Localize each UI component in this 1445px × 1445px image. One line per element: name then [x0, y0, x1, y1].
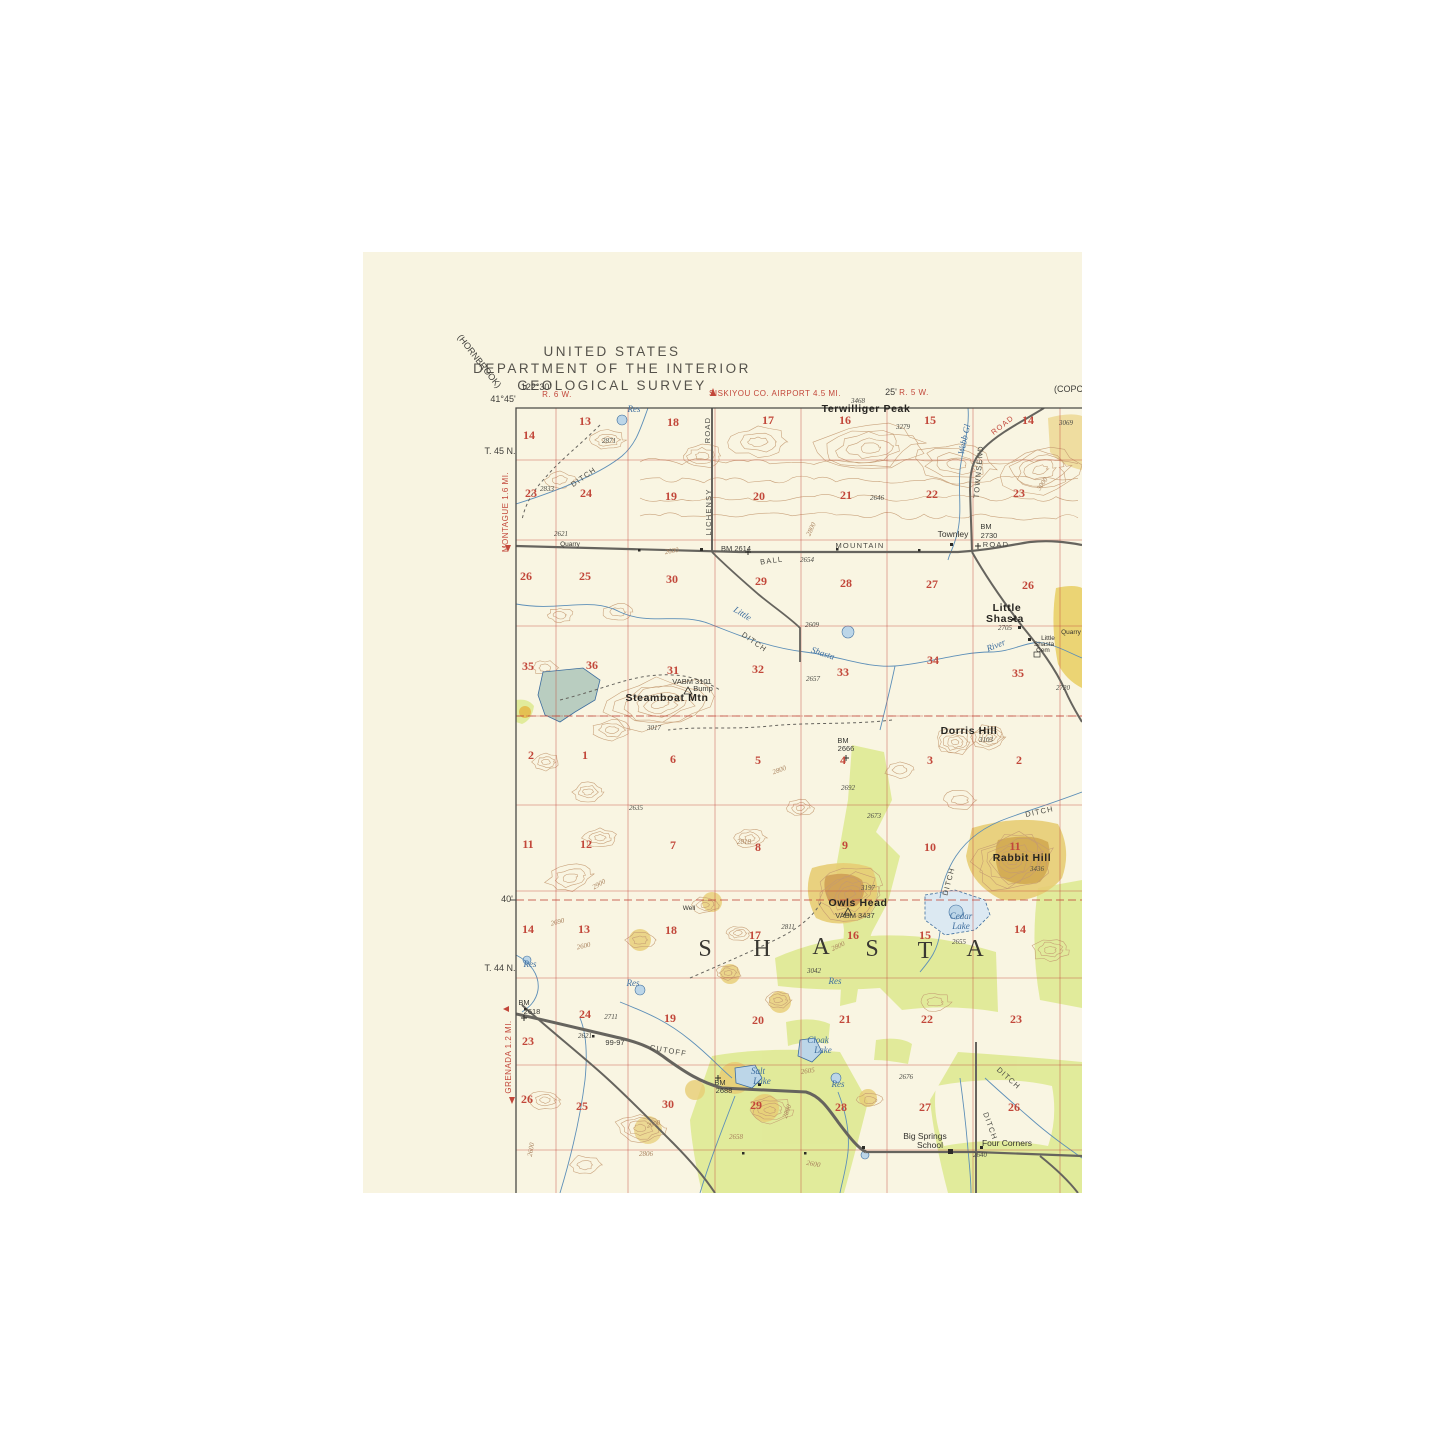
label-2657: 2657 [806, 675, 821, 683]
label-2833: 2833 [540, 485, 555, 493]
label-2666: 2666 [838, 744, 855, 753]
label-2673: 2673 [867, 812, 882, 820]
section-number-16: 16 [839, 413, 851, 427]
section-number-21: 21 [839, 1012, 851, 1026]
label-2609: 2609 [805, 621, 820, 629]
label-r-6-w: R. 6 W. [542, 390, 572, 399]
label-t-45-n: T. 45 N. [484, 446, 515, 456]
label-terwilliger-peak: Terwilliger Peak [822, 403, 911, 415]
section-number-29: 29 [750, 1098, 762, 1112]
section-number-33: 33 [837, 665, 849, 679]
section-number-28: 28 [835, 1100, 847, 1114]
label-3197: 3197 [860, 884, 876, 892]
label-owls-head: Owls Head [828, 897, 887, 909]
section-number-25: 25 [576, 1099, 588, 1113]
section-number-32: 32 [752, 662, 764, 676]
section-number-25: 25 [579, 569, 591, 583]
label-cedar: Cedar [950, 911, 973, 921]
section-number-14: 14 [1014, 922, 1026, 936]
section-number-24: 24 [580, 486, 592, 500]
section-number-30: 30 [666, 572, 678, 586]
section-number-24: 24 [579, 1007, 591, 1021]
section-number-18: 18 [665, 923, 677, 937]
map-body [516, 408, 1082, 1193]
screenshot-canvas: UNITED STATES DEPARTMENT OF THE INTERIOR… [0, 0, 1445, 1445]
label-41-45: 41°45' [490, 394, 516, 404]
section-number-23: 23 [522, 1034, 534, 1048]
label-siskiyou-co-airport-4-5-mi: SISKIYOU CO. AIRPORT 4.5 MI. [709, 389, 841, 398]
label-lake: Lake [813, 1045, 832, 1055]
section-number-17: 17 [762, 413, 774, 427]
label-3279: 3279 [895, 423, 911, 431]
label-bm: BM [518, 998, 529, 1007]
header-line-1: UNITED STATES [543, 344, 680, 359]
section-number-3: 3 [927, 753, 933, 767]
section-number-13: 13 [578, 922, 590, 936]
label-res: Res [523, 959, 537, 969]
section-number-14: 14 [522, 922, 534, 936]
label-2654: 2654 [800, 556, 815, 564]
label-res: Res [627, 404, 641, 414]
section-number-18: 18 [667, 415, 679, 429]
label-well: Well [683, 905, 696, 912]
label-s: S [698, 936, 713, 962]
pond [842, 626, 854, 638]
section-number-6: 6 [670, 752, 676, 766]
school-symbol [948, 1149, 953, 1154]
section-number-11: 11 [522, 837, 533, 851]
pond [617, 415, 627, 425]
section-number-19: 19 [665, 489, 677, 503]
label-mountain: MOUNTAIN [835, 541, 884, 550]
label-3103: 3103 [978, 736, 994, 744]
label-h: H [753, 936, 772, 962]
label-3468: 3468 [850, 397, 866, 405]
label-rabbit-hill: Rabbit Hill [993, 852, 1052, 864]
section-number-27: 27 [926, 577, 938, 591]
section-number-26: 26 [1008, 1100, 1020, 1114]
label-2818: 2818 [737, 838, 752, 846]
label-2618: 2618 [524, 1007, 541, 1016]
label-school: School [917, 1140, 943, 1150]
label-bm: BM [980, 522, 991, 531]
section-number-35: 35 [522, 659, 534, 673]
section-number-35: 35 [1012, 666, 1024, 680]
label-bump: Bump [693, 684, 713, 693]
label-r-5-w: R. 5 W. [899, 388, 929, 397]
label-40: 40' [501, 894, 513, 904]
label-99-97: 99-97 [605, 1038, 624, 1047]
label-2730: 2730 [981, 531, 998, 540]
topo-map-scan: UNITED STATES DEPARTMENT OF THE INTERIOR… [0, 0, 1445, 1445]
section-number-1: 1 [582, 748, 588, 762]
section-number-20: 20 [752, 1013, 764, 1027]
section-number-22: 22 [921, 1012, 933, 1026]
section-number-23: 23 [1010, 1012, 1022, 1026]
label-2711: 2711 [604, 1013, 617, 1021]
section-number-13: 13 [579, 414, 591, 428]
label-bm-2614: BM 2614 [721, 544, 751, 553]
label-2655: 2655 [952, 938, 967, 946]
label-2688: 2688 [716, 1086, 733, 1095]
label-lake: Lake [752, 1076, 771, 1086]
section-number-22: 22 [926, 487, 938, 501]
section-number-29: 29 [755, 574, 767, 588]
label-montague-1-6-mi: MONTAGUE 1.6 MI. [501, 472, 510, 552]
section-number-14: 14 [523, 428, 535, 442]
label-2811: 2811 [781, 923, 794, 931]
label-cloak: Cloak [807, 1035, 830, 1045]
label-25: 25' [885, 387, 897, 397]
label-2720: 2720 [1056, 684, 1071, 692]
section-number-14: 14 [1022, 413, 1034, 427]
label-a: A [966, 936, 985, 962]
label-3042: 3042 [806, 967, 822, 975]
label-salt: Salt [751, 1066, 766, 1076]
label-2658: 2658 [729, 1133, 744, 1141]
section-number-4: 4 [840, 753, 846, 767]
label-2806: 2806 [639, 1150, 654, 1158]
section-number-11: 11 [1009, 839, 1020, 853]
section-number-20: 20 [753, 489, 765, 503]
section-number-34: 34 [927, 653, 939, 667]
label-2635: 2635 [629, 804, 644, 812]
label-2621: 2621 [578, 1032, 592, 1040]
label-lake: Lake [951, 921, 970, 931]
label-2692: 2692 [841, 784, 856, 792]
section-number-2: 2 [528, 748, 534, 762]
label-3436: 3436 [1029, 865, 1045, 873]
label-quarry: Quarry [1061, 629, 1082, 636]
section-number-8: 8 [755, 840, 761, 854]
section-number-2: 2 [1016, 753, 1022, 767]
section-number-23: 23 [525, 486, 537, 500]
label-res: Res [626, 978, 640, 988]
label-quarry: Quarry [560, 541, 581, 548]
section-number-5: 5 [755, 753, 761, 767]
section-number-21: 21 [840, 488, 852, 502]
label-lichensy: LICHENSY [704, 488, 713, 535]
label-2646: 2646 [870, 494, 885, 502]
label-2871: 2871 [602, 437, 616, 445]
section-number-16: 16 [847, 928, 859, 942]
label-road: ROAD [703, 417, 712, 443]
label-t-44-n: T. 44 N. [484, 963, 515, 973]
header-line-2: DEPARTMENT OF THE INTERIOR [473, 361, 751, 376]
label-2676: 2676 [899, 1073, 914, 1081]
label-3017: 3017 [646, 724, 662, 732]
section-number-27: 27 [919, 1100, 931, 1114]
label-a: A [812, 934, 831, 960]
section-number-12: 12 [580, 837, 592, 851]
label-res: Res [828, 976, 842, 986]
section-number-23: 23 [1013, 486, 1025, 500]
label-cem: Cem [1036, 647, 1050, 654]
section-number-26: 26 [521, 1092, 533, 1106]
label-2640: 2640 [973, 1151, 988, 1159]
label-grenada-1-2-mi: GRENADA 1.2 MI. [504, 1020, 513, 1093]
section-number-36: 36 [586, 658, 598, 672]
section-number-19: 19 [664, 1011, 676, 1025]
section-number-28: 28 [840, 576, 852, 590]
section-number-9: 9 [842, 838, 848, 852]
label-2705: 2705 [998, 624, 1013, 632]
label-vabm-3437: VABM 3437 [835, 911, 874, 920]
label-four-corners: Four Corners [982, 1138, 1032, 1148]
section-number-10: 10 [924, 840, 936, 854]
label-3069: 3069 [1058, 419, 1074, 427]
section-number-31: 31 [667, 663, 679, 677]
section-number-15: 15 [924, 413, 936, 427]
section-number-7: 7 [670, 838, 676, 852]
label-road: ROAD [983, 540, 1009, 549]
label-2621: 2621 [554, 530, 568, 538]
section-number-30: 30 [662, 1097, 674, 1111]
label-t: T [918, 938, 935, 964]
section-number-26: 26 [520, 569, 532, 583]
label-s: S [865, 936, 880, 962]
label-townley: Townley [938, 529, 969, 539]
section-number-26: 26 [1022, 578, 1034, 592]
label-steamboat-mtn: Steamboat Mtn [625, 692, 708, 704]
label-res: Res [831, 1079, 845, 1089]
